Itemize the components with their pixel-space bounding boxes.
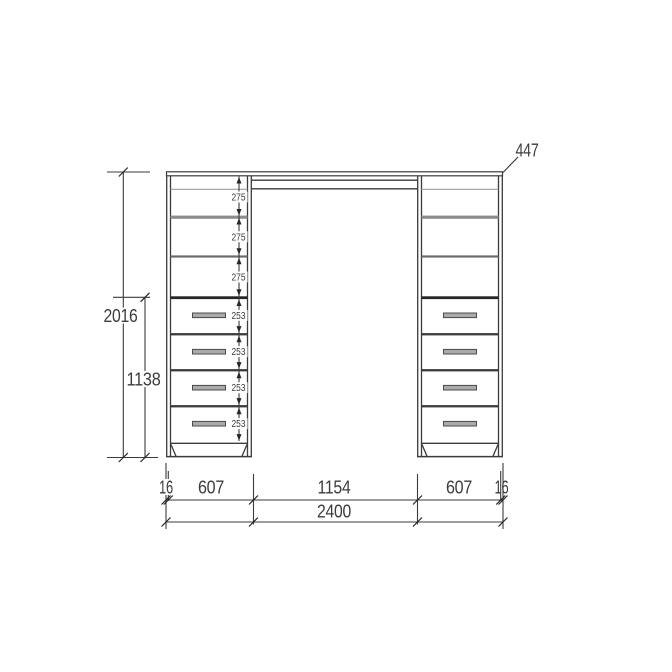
drawer-section-height-label: 1138 (127, 368, 161, 389)
left-tower-drawer-separator-1 (171, 333, 248, 335)
shelf-gap-label: 275 (232, 232, 246, 243)
right-tower (417, 176, 503, 457)
depth-dimension: 447 (503, 140, 539, 173)
side-panel-left-label: 16 (159, 476, 173, 497)
left-tower-plinth (166, 443, 252, 456)
dim-arrow-up-icon (237, 336, 242, 343)
dim-arrow-up-icon (237, 218, 242, 225)
right-tower-drawer-separator-1 (422, 333, 499, 335)
dim-arrow-down-icon (237, 209, 242, 216)
plinth-right-bevel (493, 445, 498, 457)
drawer-handle (193, 349, 226, 354)
top-panel (167, 172, 503, 176)
right-tower-drawer-separator-3 (422, 405, 499, 407)
drawer-handle (193, 385, 226, 390)
drawer-handle (193, 313, 226, 318)
drawer-handle (444, 349, 477, 354)
dim-arrow-up-icon (237, 258, 242, 265)
wardrobe-elevation-drawing: 275 275 275 253 253 253 253 2016 1138 44… (0, 0, 672, 672)
drawer-gap-label: 253 (232, 347, 246, 358)
drawer-gap-label: 253 (232, 419, 246, 430)
dim-arrow-down-icon (237, 248, 242, 255)
hanging-rail (251, 180, 417, 189)
dim-arrow-down-icon (237, 289, 242, 296)
left-tower-drawer-section-top (171, 296, 248, 299)
side-panel-right-label: 16 (495, 476, 509, 497)
total-height-label: 2016 (104, 305, 138, 326)
total-width-label: 2400 (317, 500, 351, 521)
wardrobe-technical-drawing-canvas: 275 275 275 253 253 253 253 2016 1138 44… (0, 0, 672, 672)
dim-arrow-down-icon (237, 398, 242, 405)
shelf-gap-label: 275 (232, 193, 246, 204)
cabinet (166, 172, 503, 457)
right-tower-drawer-section-top (422, 296, 499, 299)
right-tower-shelf-1 (422, 216, 499, 219)
left-tower-drawer-separator-3 (171, 405, 248, 407)
right-tower-shelf-2 (422, 255, 499, 257)
shelf-gap-label: 275 (232, 273, 246, 284)
plinth-right-bevel (242, 445, 247, 457)
dim-arrow-up-icon (237, 300, 242, 307)
right-tower-plinth (417, 443, 503, 456)
width-dimensions: 16 607 1154 607 16 2400 (157, 463, 509, 529)
dim-arrow-up-icon (237, 408, 242, 415)
left-bay-width-label: 607 (198, 476, 224, 497)
plinth-left-bevel (422, 445, 427, 457)
dim-arrow-down-icon (237, 434, 242, 441)
height-dimensions: 2016 1138 (103, 168, 162, 463)
drawer-handle (444, 313, 477, 318)
drawer-handle (444, 421, 477, 426)
depth-label: 447 (516, 140, 539, 161)
right-tower-drawer-separator-2 (422, 369, 499, 371)
drawer-gap-label: 253 (232, 383, 246, 394)
left-tower-shelf-2 (171, 255, 248, 257)
dim-arrow-down-icon (237, 362, 242, 369)
right-bay-width-label: 607 (446, 476, 472, 497)
dim-arrow-down-icon (237, 326, 242, 333)
dim-arrow-up-icon (237, 177, 242, 184)
drawer-gap-label: 253 (232, 311, 246, 322)
left-tower-shelf-1 (171, 216, 248, 219)
drawer-handle (193, 421, 226, 426)
middle-bay-width-label: 1154 (318, 476, 351, 497)
left-tower-drawer-separator-2 (171, 369, 248, 371)
plinth-left-bevel (171, 445, 176, 457)
drawer-handle (444, 385, 477, 390)
dim-arrow-up-icon (237, 372, 242, 379)
